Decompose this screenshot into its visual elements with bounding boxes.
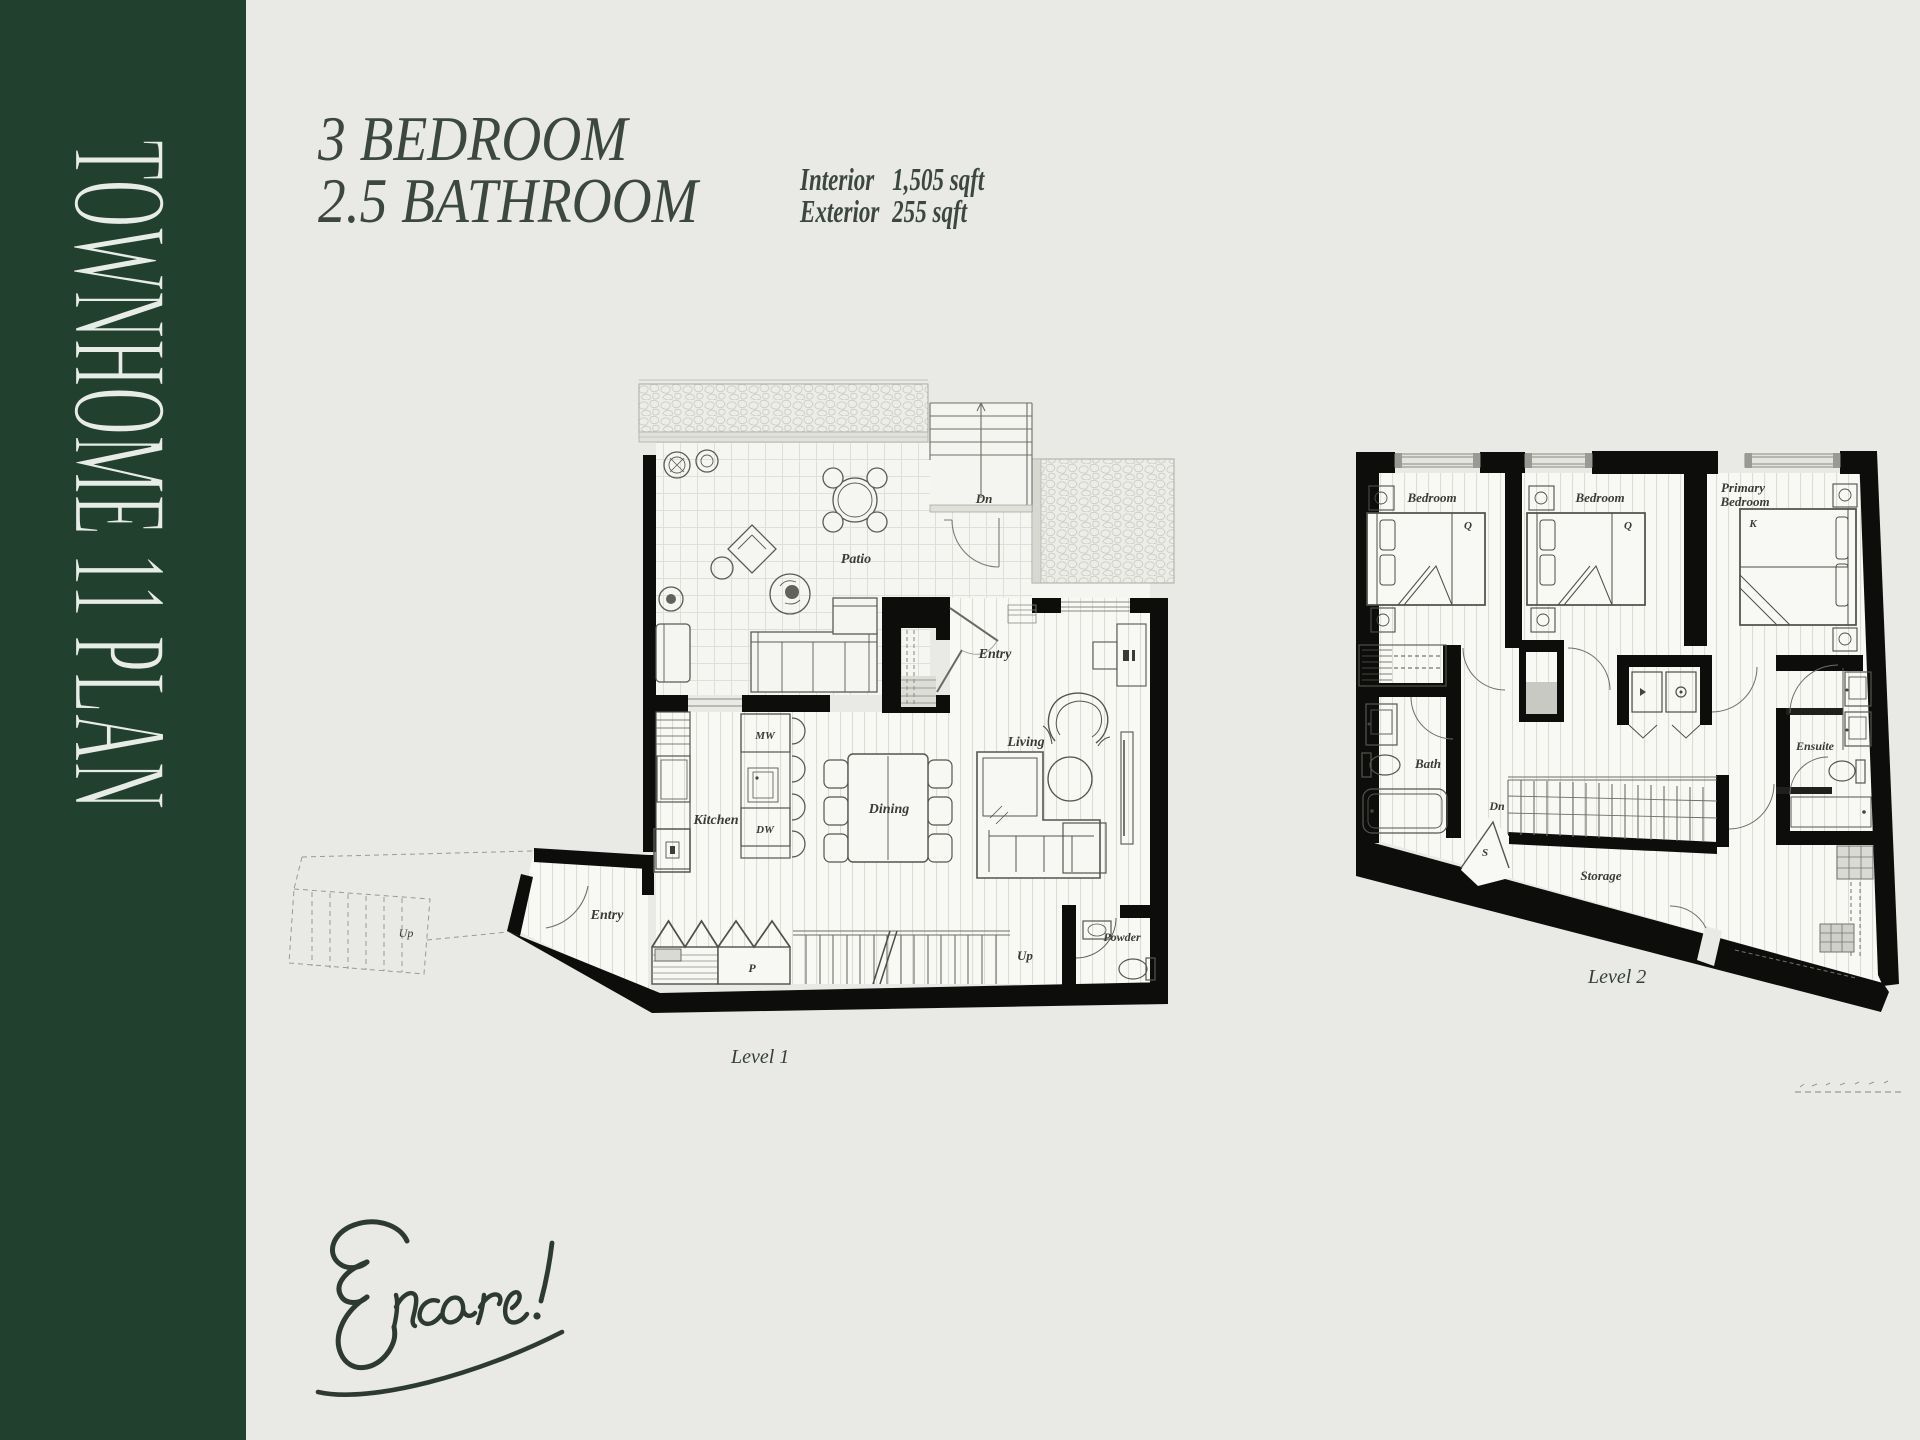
svg-text:Bedroom: Bedroom — [1574, 490, 1624, 505]
svg-text:K: K — [1748, 518, 1757, 530]
svg-text:Living: Living — [1006, 735, 1044, 750]
svg-text:P: P — [748, 961, 756, 975]
svg-text:Dn: Dn — [975, 491, 993, 506]
svg-text:Up: Up — [1017, 948, 1033, 963]
svg-text:Dining: Dining — [868, 802, 909, 817]
svg-text:Ensuite: Ensuite — [1795, 739, 1835, 753]
svg-text:S: S — [1482, 847, 1488, 859]
svg-text:Up: Up — [399, 926, 414, 940]
svg-text:Entry: Entry — [590, 908, 624, 923]
svg-text:MW: MW — [754, 730, 776, 742]
svg-text:Entry: Entry — [978, 647, 1012, 662]
svg-text:Storage: Storage — [1580, 868, 1621, 883]
svg-text:Powder: Powder — [1103, 930, 1141, 944]
svg-text:Q: Q — [1624, 520, 1632, 532]
svg-text:Patio: Patio — [841, 552, 871, 567]
svg-text:Kitchen: Kitchen — [692, 813, 738, 828]
svg-text:Bath: Bath — [1414, 756, 1441, 771]
svg-text:Bedroom: Bedroom — [1406, 490, 1456, 505]
svg-text:Primary: Primary — [1721, 480, 1765, 495]
svg-text:Q: Q — [1464, 520, 1472, 532]
svg-text:DW: DW — [755, 824, 775, 836]
svg-text:Dn: Dn — [1488, 799, 1505, 813]
svg-text:Bedroom: Bedroom — [1719, 494, 1769, 509]
